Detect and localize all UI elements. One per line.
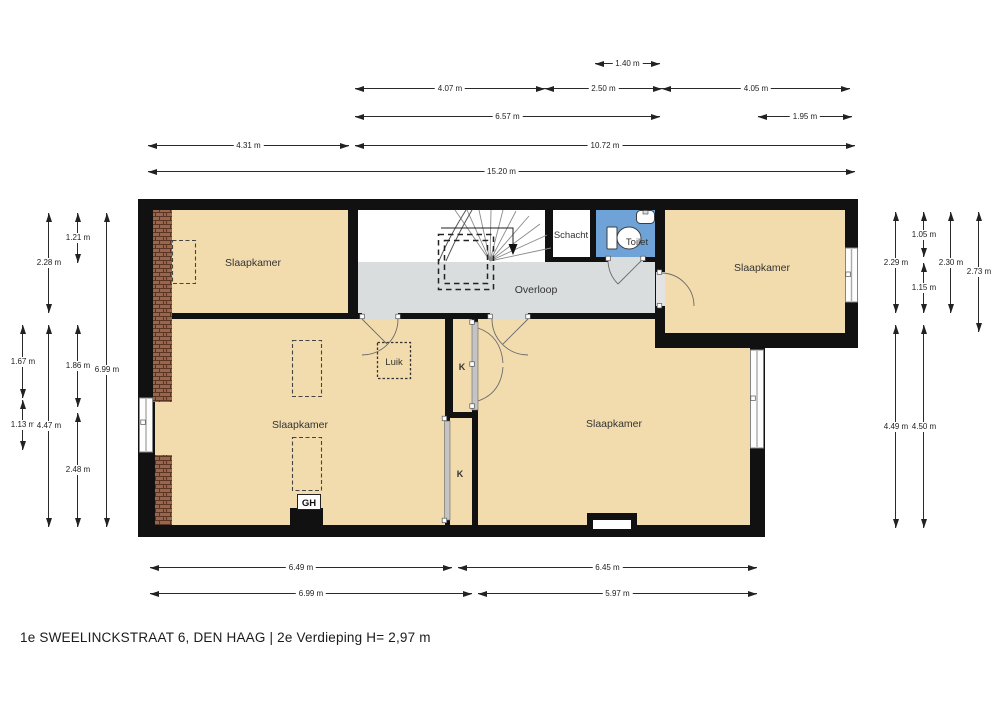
gh-label: GH: [302, 498, 316, 509]
floor-plan-svg: GH: [0, 0, 1000, 707]
label-bedroom-bottom-right: Slaapkamer: [586, 418, 643, 430]
brick-wall-sections: [153, 210, 172, 525]
toilet-cistern: [607, 227, 617, 249]
doorway-toilet: [608, 257, 643, 262]
doorway-bedroom-tr: [656, 272, 665, 306]
closet-lower-door-panel: [445, 421, 451, 520]
toilet-sink-tap: [643, 211, 648, 215]
chimney-br-flue: [593, 520, 631, 529]
water-heater-box: GH: [298, 495, 321, 510]
label-closet-upper: K: [459, 362, 466, 372]
label-hatch: Luik: [385, 357, 403, 368]
landing-floor: [358, 262, 655, 313]
label-closet-lower: K: [457, 469, 464, 479]
brick-section-top: [153, 210, 172, 402]
label-bedroom-top-left: Slaapkamer: [225, 257, 282, 269]
brick-section-bottom: [155, 455, 172, 525]
plan-caption: 1e SWEELINCKSTRAAT 6, DEN HAAG | 2e Verd…: [20, 630, 431, 645]
floorplan-page: GH: [0, 0, 1000, 707]
label-toilet: Toilet: [626, 237, 649, 248]
doorway-landing-bedroom-br: [490, 313, 528, 319]
chimney-gh: [290, 508, 323, 537]
label-shaft: Schacht: [554, 230, 589, 241]
doorway-landing-bedroom-bl: [362, 313, 398, 319]
label-bedroom-top-right: Slaapkamer: [734, 262, 791, 274]
label-bedroom-bottom-left: Slaapkamer: [272, 419, 329, 431]
stairwell-floor: [358, 210, 545, 262]
label-landing: Overloop: [515, 284, 558, 296]
